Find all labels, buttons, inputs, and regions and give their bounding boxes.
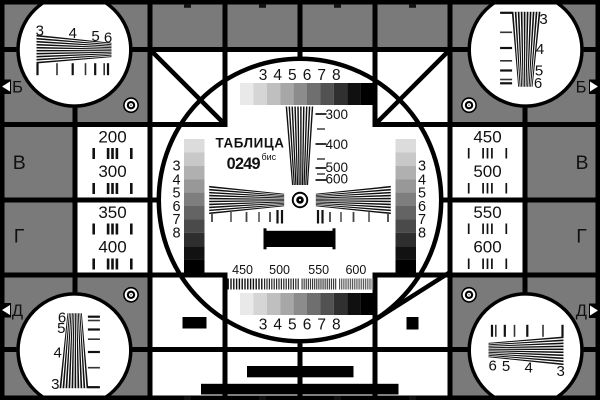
svg-text:4: 4 (536, 41, 544, 58)
svg-text:4: 4 (525, 360, 533, 377)
svg-text:4: 4 (69, 25, 77, 42)
svg-text:4: 4 (273, 67, 282, 84)
svg-text:8: 8 (172, 226, 180, 242)
svg-text:5: 5 (57, 320, 65, 337)
svg-text:бис: бис (262, 152, 277, 162)
svg-text:600: 600 (326, 172, 349, 187)
svg-text:5: 5 (91, 28, 99, 45)
svg-text:8: 8 (332, 67, 341, 84)
svg-text:450: 450 (473, 128, 501, 147)
svg-text:6: 6 (303, 67, 312, 84)
svg-text:Б: Б (576, 79, 587, 97)
svg-text:3: 3 (539, 11, 547, 28)
svg-text:3: 3 (51, 376, 59, 393)
svg-text:3: 3 (557, 363, 565, 380)
svg-text:3: 3 (259, 67, 268, 84)
svg-text:0249: 0249 (227, 155, 261, 173)
svg-text:В: В (575, 152, 588, 174)
svg-text:5: 5 (288, 317, 297, 334)
svg-text:600: 600 (473, 238, 501, 257)
svg-text:200: 200 (98, 128, 126, 147)
svg-text:550: 550 (308, 263, 329, 277)
svg-text:400: 400 (326, 137, 349, 152)
svg-text:4: 4 (54, 345, 62, 362)
svg-text:3: 3 (36, 22, 44, 39)
svg-text:500: 500 (269, 263, 290, 277)
svg-text:5: 5 (502, 358, 510, 375)
svg-text:Б: Б (12, 79, 23, 97)
svg-text:Г: Г (14, 226, 25, 248)
svg-text:Д: Д (576, 302, 587, 320)
svg-text:ТАБЛИЦА: ТАБЛИЦА (216, 135, 285, 150)
svg-text:8: 8 (332, 317, 341, 334)
svg-text:600: 600 (345, 263, 366, 277)
svg-text:7: 7 (317, 317, 326, 334)
svg-text:5: 5 (288, 67, 297, 84)
svg-text:8: 8 (418, 226, 426, 242)
svg-text:400: 400 (98, 238, 126, 257)
svg-text:6: 6 (104, 29, 112, 46)
svg-text:7: 7 (317, 67, 326, 84)
svg-text:В: В (13, 152, 26, 174)
svg-text:6: 6 (534, 75, 542, 92)
svg-text:Д: Д (12, 302, 23, 320)
svg-text:550: 550 (473, 203, 501, 222)
svg-text:Г: Г (576, 226, 587, 248)
svg-text:300: 300 (98, 162, 126, 181)
svg-text:300: 300 (326, 107, 349, 122)
svg-text:450: 450 (232, 263, 253, 277)
svg-text:3: 3 (259, 317, 268, 334)
svg-text:6: 6 (489, 358, 497, 375)
svg-text:6: 6 (303, 317, 312, 334)
svg-text:4: 4 (273, 317, 282, 334)
svg-text:500: 500 (473, 162, 501, 181)
svg-text:350: 350 (98, 203, 126, 222)
